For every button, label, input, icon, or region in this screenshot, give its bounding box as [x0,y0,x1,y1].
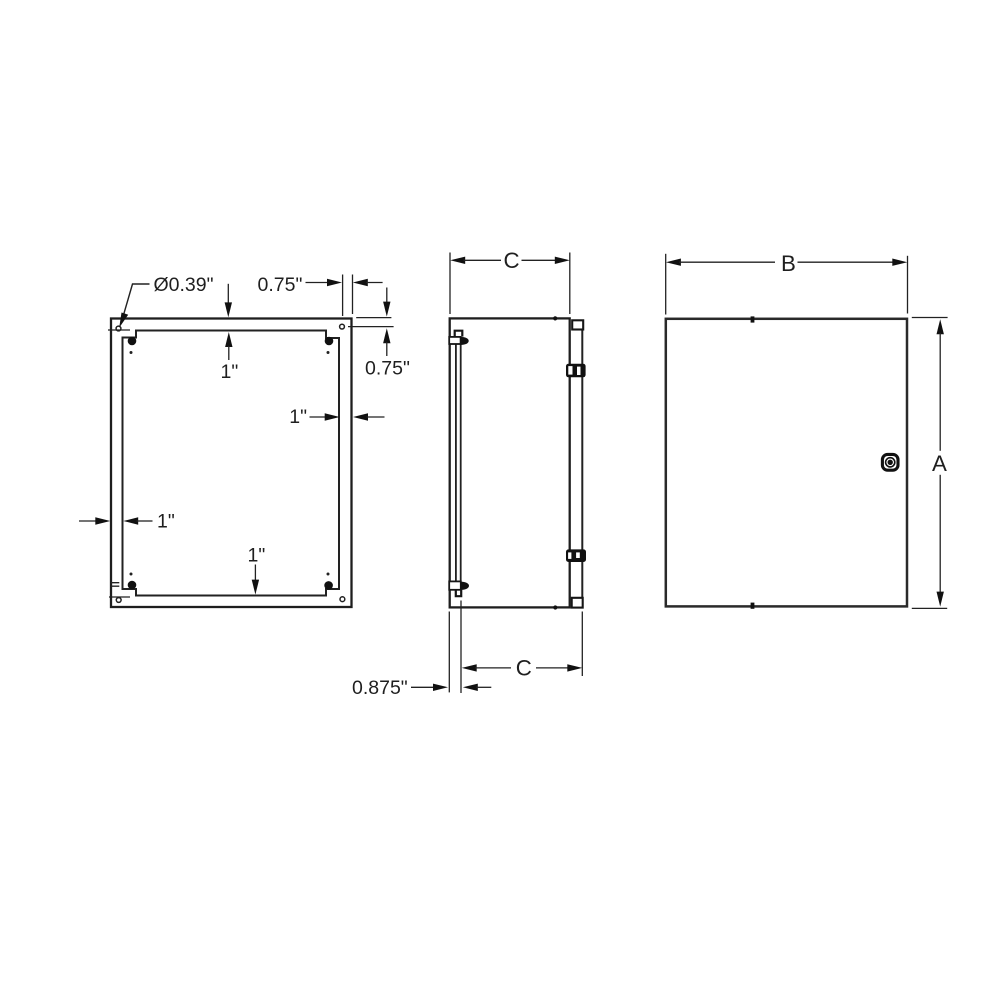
svg-text:1": 1" [248,544,266,566]
svg-text:1": 1" [289,406,307,428]
svg-text:0.75": 0.75" [258,274,303,296]
svg-text:1": 1" [221,361,239,383]
svg-text:B: B [781,251,796,276]
svg-text:Ø0.39": Ø0.39" [154,274,214,296]
svg-text:0.875": 0.875" [352,677,408,699]
svg-text:1": 1" [157,510,175,532]
svg-text:0.75": 0.75" [365,358,410,380]
svg-text:C: C [504,248,520,273]
svg-text:A: A [932,451,947,476]
svg-text:C: C [516,656,532,681]
